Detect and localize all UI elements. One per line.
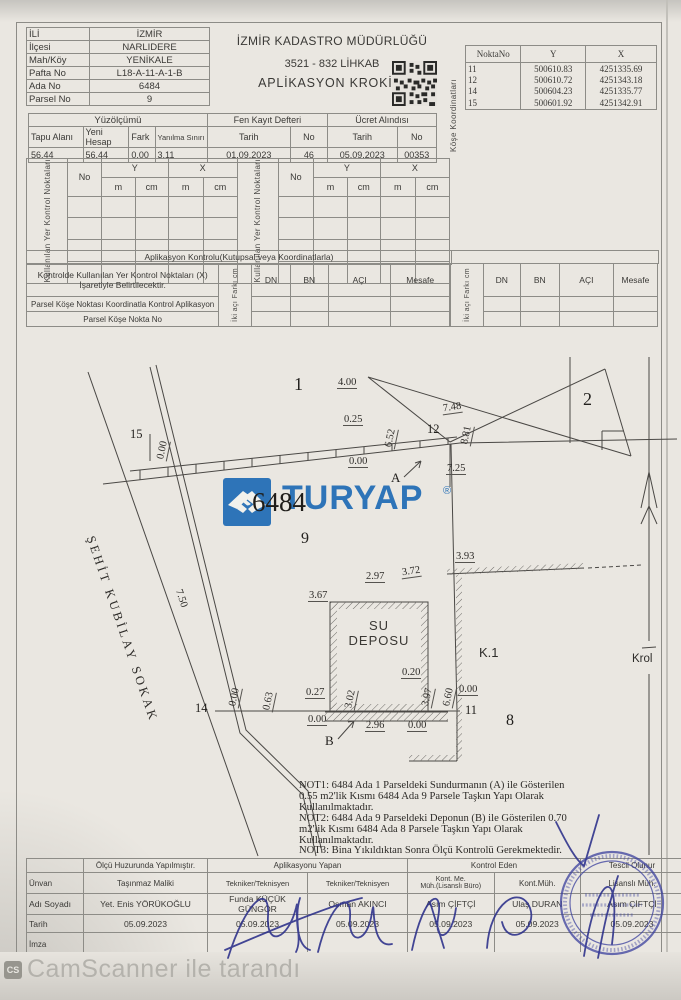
signature-stray-mark — [556, 815, 599, 866]
signature-kontme — [412, 899, 456, 950]
ink-overlay — [0, 0, 681, 1000]
signature-tekniker2 — [318, 902, 392, 952]
signature-kontmuh — [487, 897, 531, 948]
signature-maliki — [225, 898, 362, 952]
